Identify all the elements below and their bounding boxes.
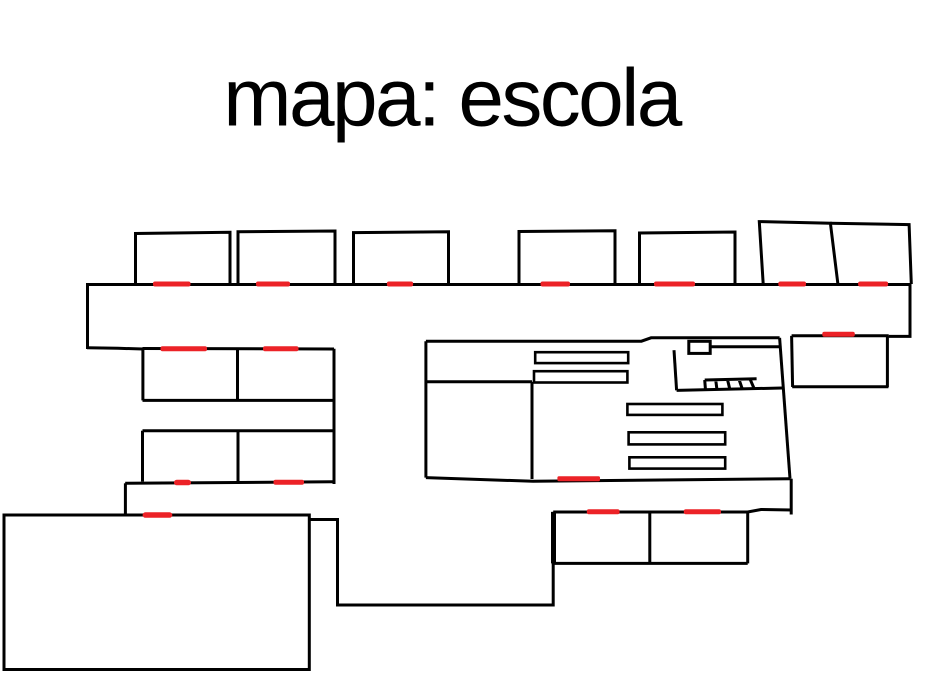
svg-text:mapa: escola: mapa: escola <box>223 53 683 144</box>
